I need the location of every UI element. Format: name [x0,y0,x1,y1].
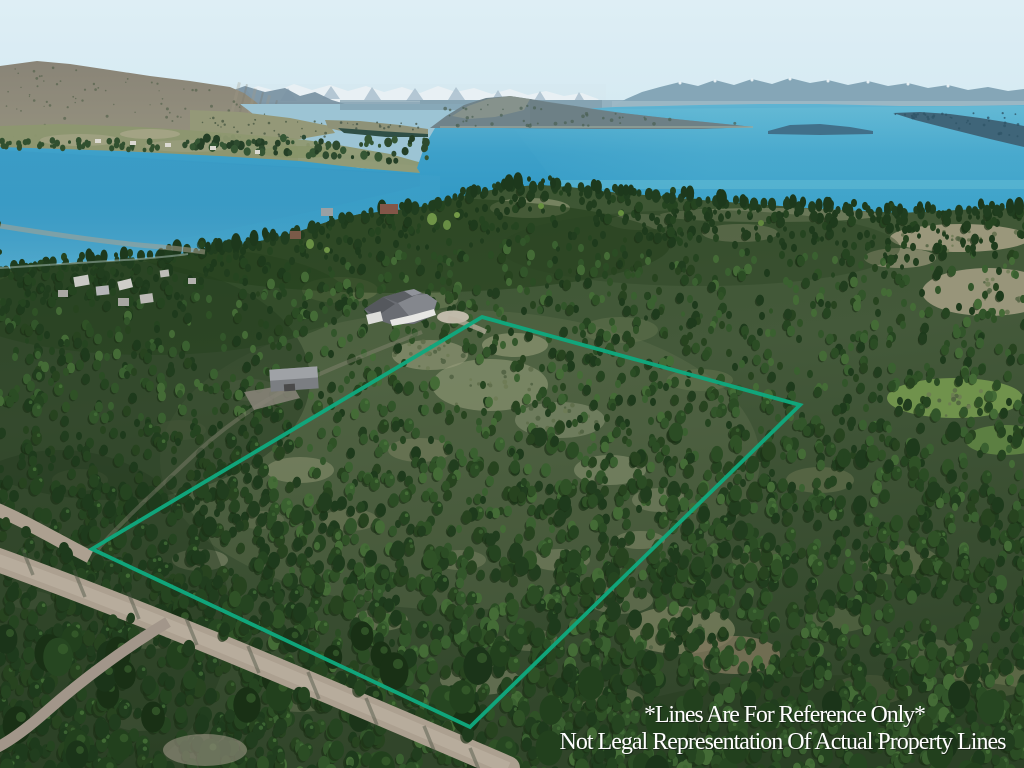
svg-text:*Lines Are For Reference Only*: *Lines Are For Reference Only* [644,702,926,728]
svg-text:Not Legal Representation Of Ac: Not Legal Representation Of Actual Prope… [560,729,1007,755]
